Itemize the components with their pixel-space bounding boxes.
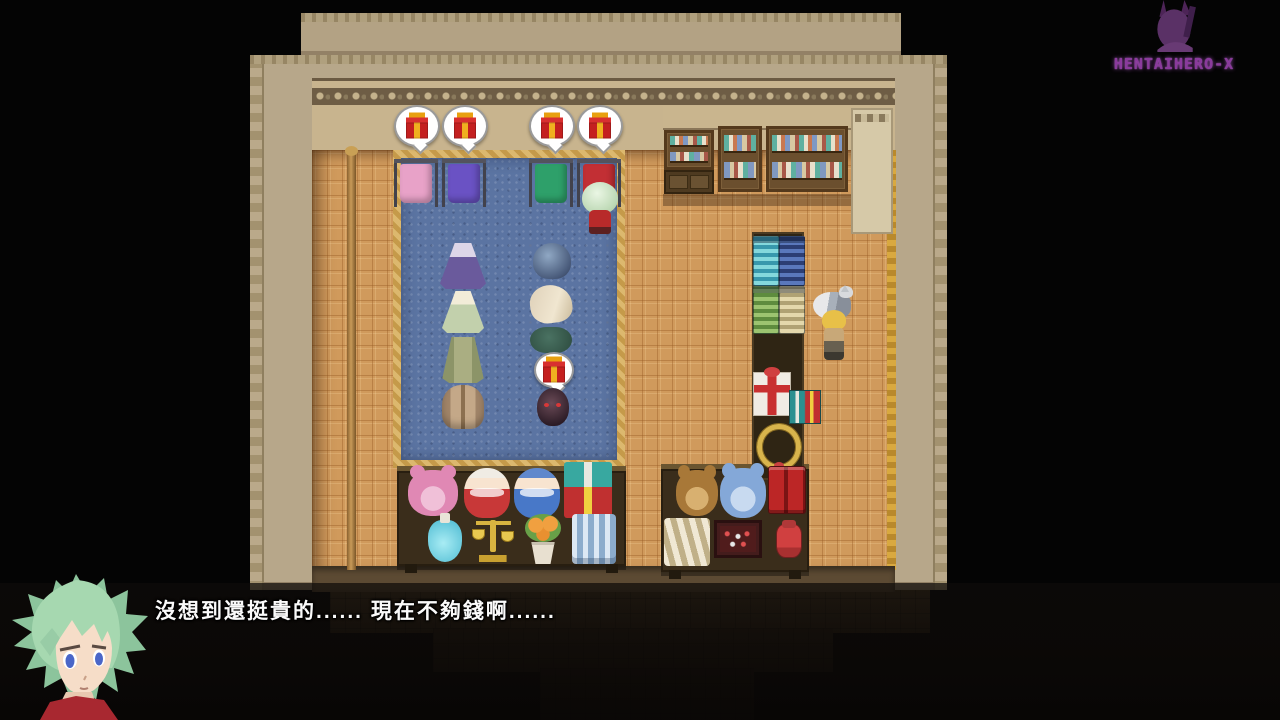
hat-feathered[interactable] — [528, 282, 575, 325]
doll-red[interactable] — [464, 468, 510, 518]
doll-blue[interactable] — [514, 468, 560, 518]
mascot-silhouette-icon — [1131, 0, 1217, 52]
shopkeeper[interactable] — [818, 310, 850, 364]
orb-dark[interactable] — [537, 388, 569, 426]
hat-green[interactable] — [530, 327, 572, 353]
fabric-bolt-green[interactable] — [753, 286, 779, 334]
speaker-portrait — [0, 572, 152, 720]
dialogue-box[interactable]: 沒想到還挺貴的...... 現在不夠錢啊...... — [0, 583, 1280, 720]
dress-white-green[interactable] — [442, 291, 484, 333]
gift-display-small[interactable] — [789, 390, 821, 424]
fabric-bolt-cyan[interactable] — [753, 236, 779, 286]
flower-pot[interactable] — [522, 514, 564, 564]
gift-display-white[interactable] — [753, 372, 791, 416]
watermark-text: HENTAIHERO-X — [1074, 55, 1274, 73]
teddy-bear-blue[interactable] — [720, 468, 766, 518]
rack-shirt-purple[interactable] — [442, 161, 486, 207]
fabric-rolls-blue[interactable] — [572, 514, 616, 564]
dialogue-text: 沒想到還挺貴的...... 現在不夠錢啊...... — [155, 595, 556, 625]
watermark: HENTAIHERO-X — [1074, 0, 1274, 73]
game-board[interactable] — [714, 520, 762, 558]
shelf-unit-2[interactable] — [718, 126, 762, 192]
red-books[interactable] — [768, 466, 806, 514]
helmet-blue[interactable] — [533, 243, 571, 279]
fabric-bolt-blue[interactable] — [779, 236, 805, 286]
teddy-bear-pink[interactable] — [408, 470, 458, 516]
player-character[interactable] — [580, 180, 620, 236]
gift-bubble-2[interactable] — [442, 105, 488, 147]
shelf-unit-1[interactable] — [664, 130, 714, 170]
rack-shirt-pink[interactable] — [394, 161, 438, 207]
jar-red[interactable] — [776, 524, 802, 558]
teddy-bear-brown[interactable] — [676, 470, 718, 516]
gift-stack[interactable] — [564, 462, 612, 518]
door-panel — [851, 108, 893, 234]
coat-green[interactable] — [440, 337, 486, 383]
gift-bubble-1[interactable] — [394, 105, 440, 147]
potion-blue[interactable] — [428, 520, 462, 562]
shelf-unit-3[interactable] — [766, 126, 848, 192]
shelf-drawer-cabinet[interactable] — [664, 170, 714, 194]
green-hair-hero-portrait-icon — [0, 572, 152, 720]
rack-shirt-green[interactable] — [529, 161, 573, 207]
gold-scales[interactable] — [470, 516, 516, 562]
dress-purple[interactable] — [440, 243, 486, 289]
backpack-brown[interactable] — [442, 385, 484, 429]
gift-bubble-4[interactable] — [577, 105, 623, 147]
gift-bubble-small[interactable] — [534, 352, 574, 388]
gold-ring-display[interactable] — [757, 424, 801, 470]
game-viewport[interactable]: 沒想到還挺貴的...... 現在不夠錢啊...... — [0, 0, 1280, 720]
gift-bubble-3[interactable] — [529, 105, 575, 147]
fabric-bolt-cream[interactable] — [779, 286, 805, 334]
fabric-bundle-white[interactable] — [664, 518, 710, 566]
